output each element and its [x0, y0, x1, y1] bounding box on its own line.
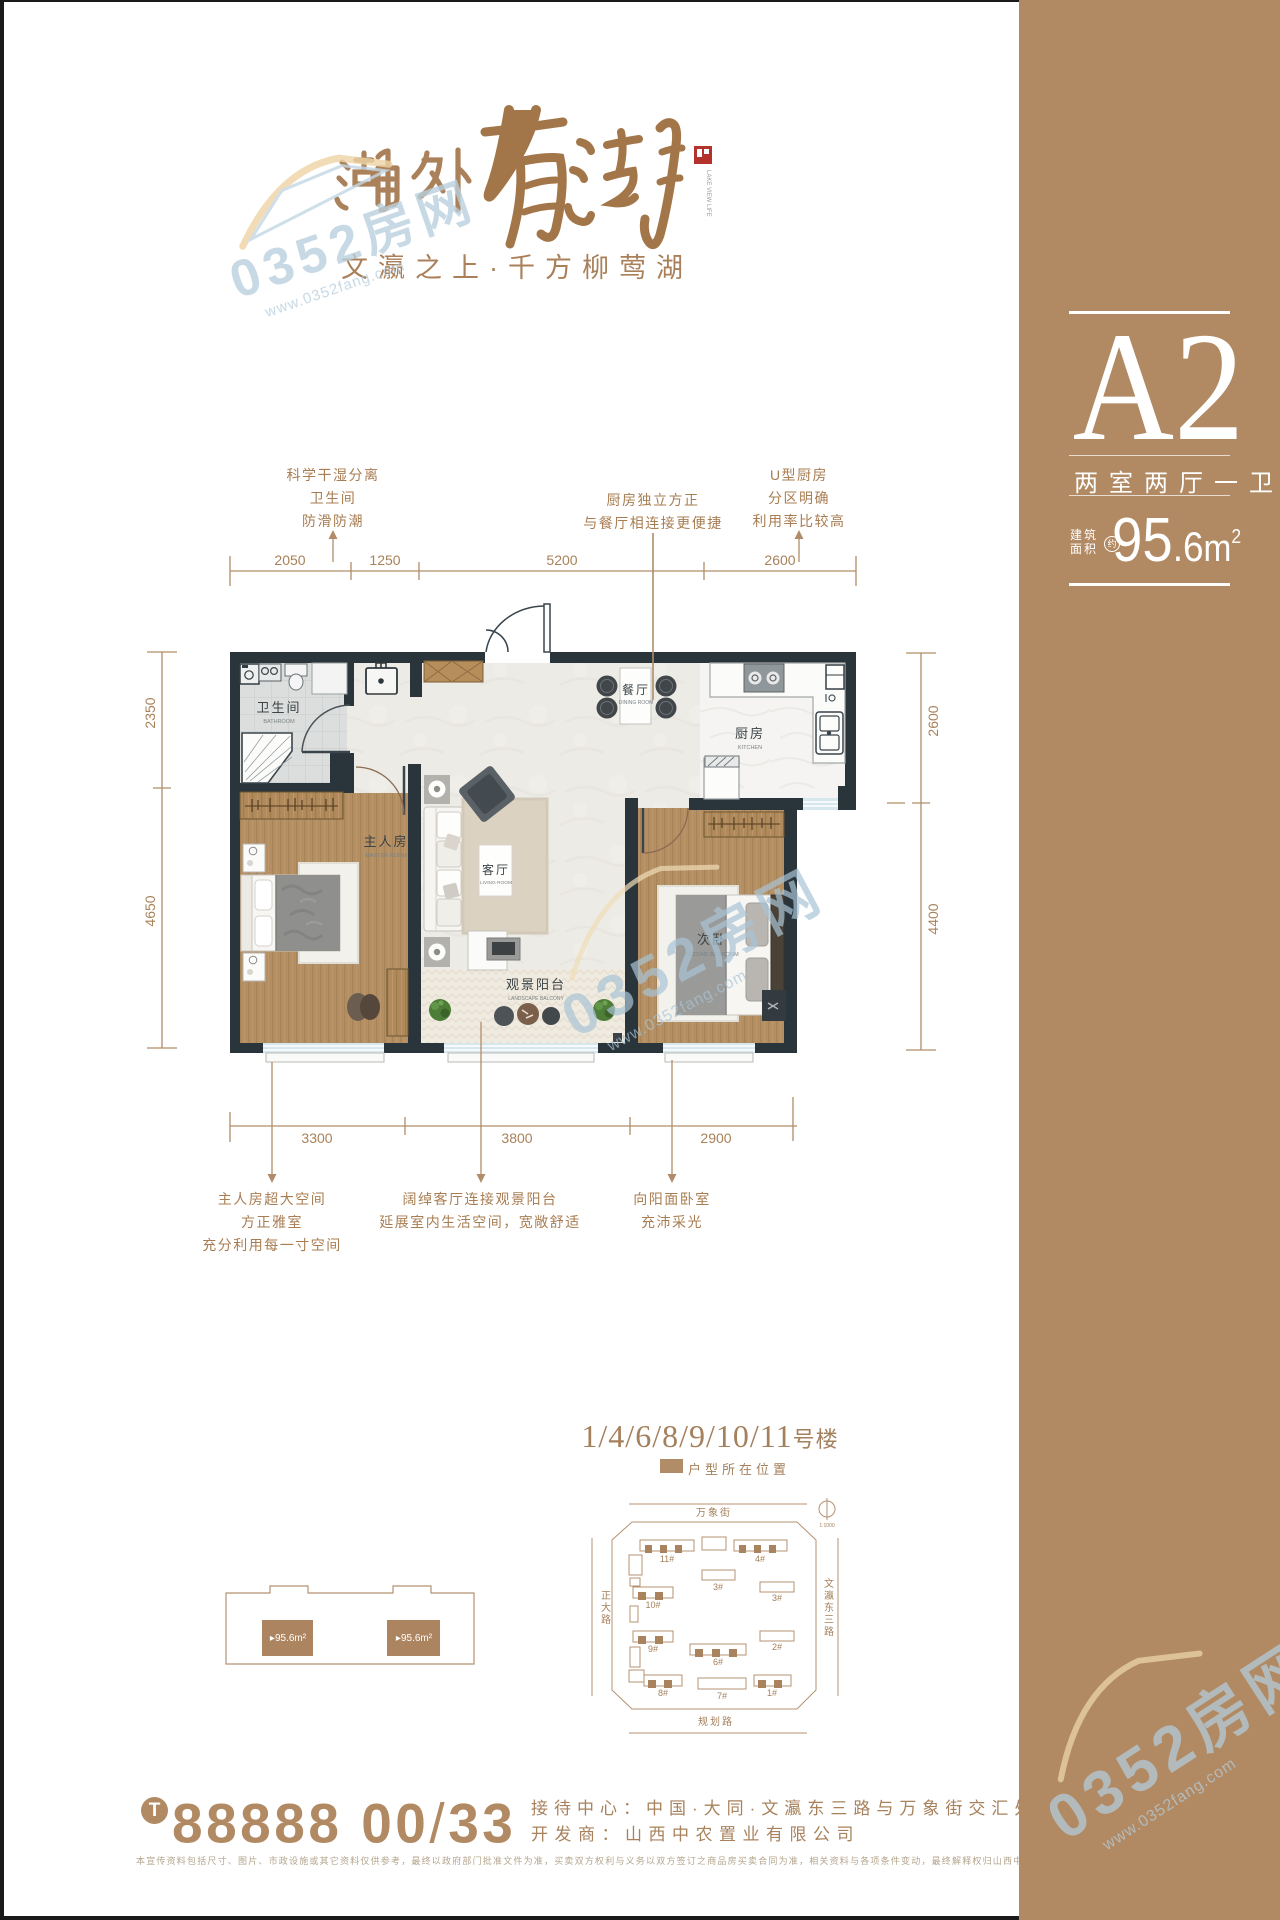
svg-text:▸95.6m²: ▸95.6m²	[270, 1633, 307, 1644]
svg-text:▸95.6m²: ▸95.6m²	[396, 1633, 433, 1644]
svg-text:1#: 1#	[767, 1688, 777, 1698]
svg-text:2#: 2#	[772, 1642, 782, 1652]
svg-text:9#: 9#	[648, 1644, 658, 1654]
svg-text:4#: 4#	[755, 1554, 765, 1564]
svg-text:规划路: 规划路	[698, 1715, 734, 1728]
svg-text:3#: 3#	[772, 1593, 782, 1603]
svg-text:8#: 8#	[658, 1688, 668, 1698]
svg-text:6#: 6#	[713, 1657, 723, 1667]
svg-text:正大路: 正大路	[599, 1590, 611, 1626]
svg-text:11#: 11#	[660, 1554, 674, 1564]
svg-text:10#: 10#	[645, 1600, 660, 1610]
svg-text:3#: 3#	[713, 1582, 723, 1592]
svg-text:文瀛东三路: 文瀛东三路	[822, 1577, 834, 1638]
svg-text:7#: 7#	[717, 1691, 727, 1701]
svg-text:万象街: 万象街	[696, 1506, 732, 1519]
svg-text:1:1000: 1:1000	[819, 1523, 835, 1529]
